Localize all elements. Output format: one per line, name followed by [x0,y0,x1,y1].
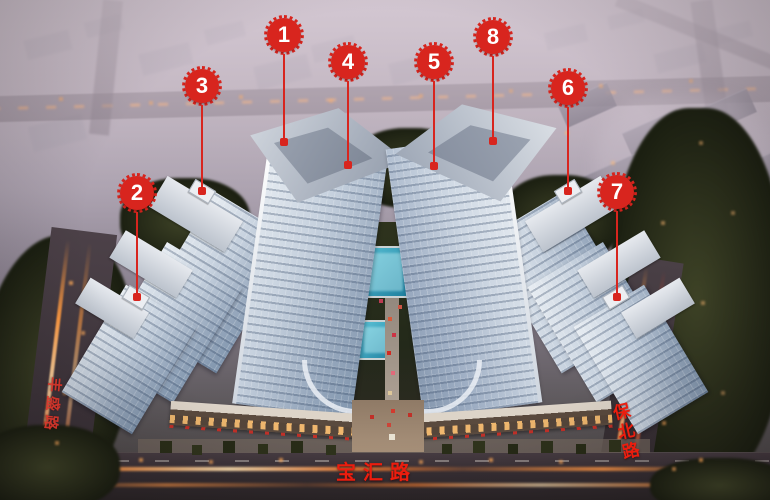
marker-number: 8 [487,26,499,48]
distant-building [138,42,194,76]
marker-badge: 8 [476,20,510,54]
distant-building [23,30,72,61]
marker-leader-line [347,81,349,165]
aerial-rendering: 丰盛路 宝汇路 保北路 1 2 3 4 5 6 7 8 [0,0,770,500]
courtyard-trees [0,0,2,2]
distant-building [204,20,247,45]
street-lights [0,0,2,2]
tree-cluster [0,425,120,500]
marker-number: 5 [428,51,440,73]
entrance-plaza [352,400,424,452]
marker-badge: 7 [600,175,634,209]
distant-building [543,23,588,51]
marker-number: 4 [342,51,354,73]
marker-leader-line [201,105,203,191]
marker-number: 7 [611,181,623,203]
marker-badge: 5 [417,45,451,79]
tree-cluster [650,458,770,500]
plaza-people-flags [0,0,2,2]
marker-number: 6 [562,77,574,99]
marker-number: 2 [131,182,143,204]
marker-badge: 4 [331,45,365,79]
marker-leader-line [567,107,569,191]
marker-badge: 6 [551,71,585,105]
road-label-bottom: 宝汇路 [336,456,417,485]
marker-leader-line [136,212,138,297]
marker-leader-line [616,211,618,297]
marker-badge: 2 [120,176,154,210]
elevated-highway [0,76,770,123]
marker-badge: 3 [185,69,219,103]
marker-leader-line [492,56,494,141]
street-trees [0,0,2,2]
marker-leader-line [433,81,435,166]
marker-number: 3 [196,75,208,97]
highway-light-trail [0,87,770,111]
marker-badge: 1 [267,18,301,52]
marker-number: 1 [278,24,290,46]
marker-leader-line [283,54,285,142]
